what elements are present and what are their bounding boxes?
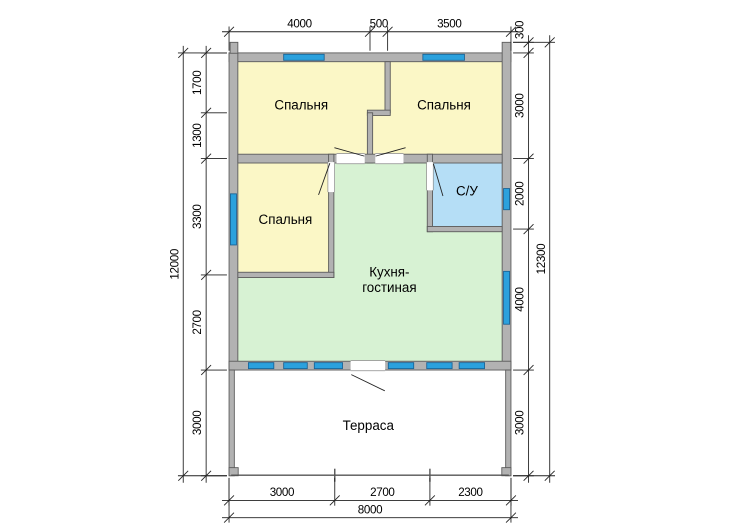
dim-value: 3000 [270,486,294,499]
door-swing-line [351,375,384,391]
room-label-bedroom-2: Спальня [417,97,471,112]
dim-value: 3000 [514,94,527,118]
window [504,189,510,210]
dim-value: 500 [370,18,388,31]
floor-plan-svg: 4000500350030002700230080001700130033002… [0,0,740,523]
room-label-kitchen-living-line-1: гостиная [362,280,416,295]
dim-value: 4000 [287,18,311,31]
window [248,363,273,369]
dim-value: 2000 [514,182,527,206]
wall [238,272,334,277]
wall [229,370,234,476]
dim-value: 4000 [514,287,527,311]
wall [427,226,502,231]
room-label-bedroom-1: Спальня [274,97,328,112]
dim-value: 12300 [535,244,548,275]
dim-value: 3300 [191,205,204,229]
window [284,54,325,60]
room-label-terrace: Терраса [343,418,395,433]
window [423,54,465,60]
window [459,363,484,369]
dim-value: 3000 [191,411,204,435]
dim-value: 300 [514,21,527,39]
window [427,363,452,369]
room-label-bedroom-3: Спальня [259,212,313,227]
terrace-edge [231,469,509,482]
floor-plan-canvas: 4000500350030002700230080001700130033002… [0,0,740,523]
window [314,363,342,369]
wall [229,53,511,62]
dim-chain-right-inner: 3003000200040003000 [513,21,534,483]
dim-value: 3500 [437,18,461,31]
floor-plan-page: 4000500350030002700230080001700130033002… [0,0,740,523]
door-opening [351,361,386,371]
door-opening [427,162,434,190]
dim-chain-bottom-inner: 300027002300 [222,478,518,506]
window [230,194,236,245]
room-label-kitchen-living-line-0: Кухня- [369,265,409,280]
dim-chain-top: 40005003500 [222,18,518,51]
dim-value: 3000 [514,411,527,435]
dim-value: 2300 [458,486,482,499]
room-label-bathroom: С/У [456,184,478,199]
dim-value: 12000 [168,249,181,280]
dim-value: 1700 [191,71,204,95]
dim-chain-left-inner: 17001300330027003000 [191,46,227,483]
window [284,363,308,369]
wall [230,42,238,53]
dim-value: 2700 [191,310,204,334]
window [504,271,510,324]
dim-value: 2700 [370,486,394,499]
wall [385,62,390,113]
wall [506,370,511,476]
dim-value: 1300 [191,123,204,147]
window [388,363,413,369]
wall [238,154,502,163]
dim-value: 8000 [358,503,382,516]
